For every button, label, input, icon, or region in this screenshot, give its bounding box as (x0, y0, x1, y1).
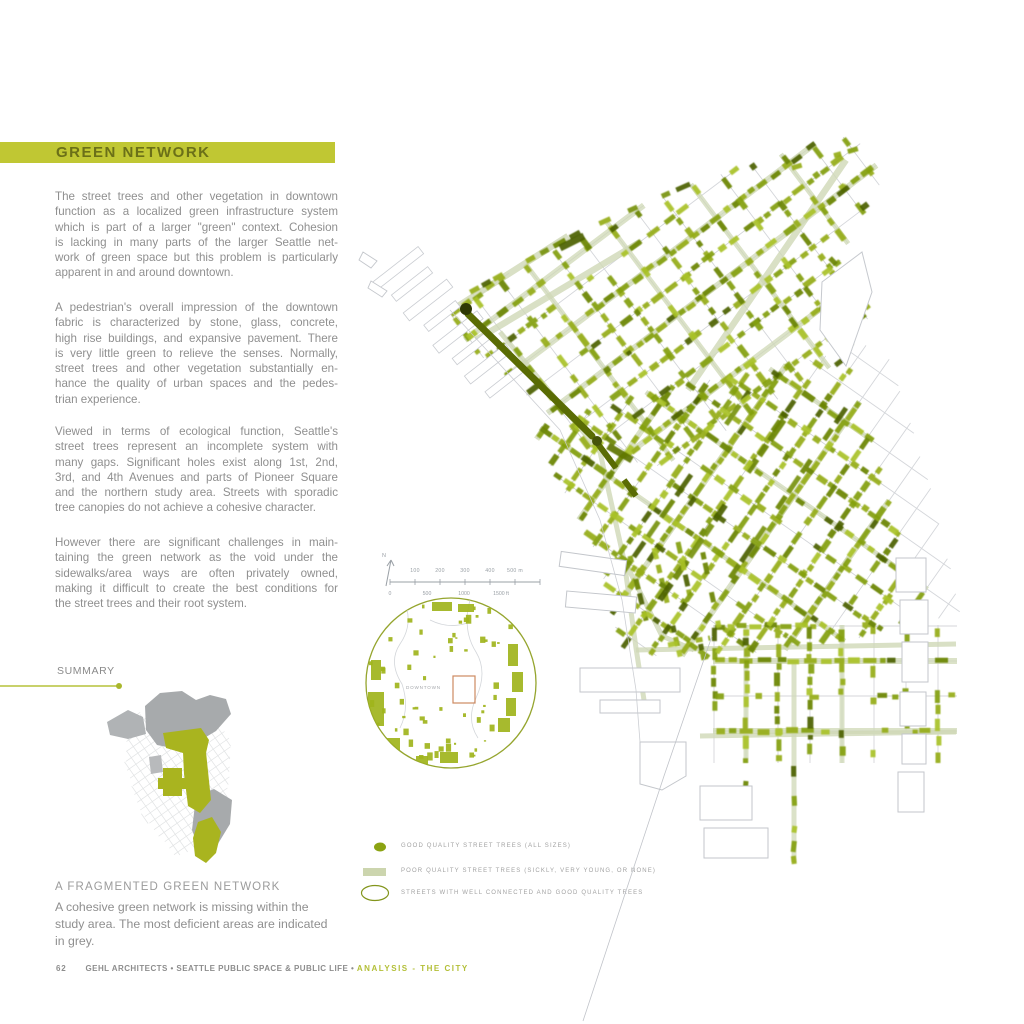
svg-text:1500 ft: 1500 ft (493, 591, 509, 597)
svg-text:200: 200 (435, 568, 445, 574)
svg-text:1000: 1000 (458, 591, 470, 597)
svg-text:500: 500 (423, 591, 432, 597)
svg-text:400: 400 (485, 568, 495, 574)
svg-text:300: 300 (460, 568, 470, 574)
svg-text:500 m: 500 m (507, 568, 523, 574)
svg-text:DOWNTOWN: DOWNTOWN (406, 685, 441, 690)
svg-text:0: 0 (389, 591, 392, 597)
svg-text:N: N (382, 553, 386, 559)
svg-text:100: 100 (410, 568, 420, 574)
